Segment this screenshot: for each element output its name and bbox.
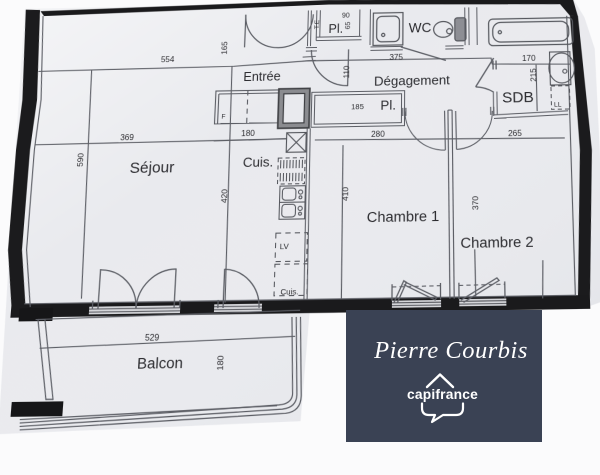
svg-text:T.E: T.E bbox=[314, 20, 321, 29]
svg-text:280: 280 bbox=[371, 130, 386, 140]
svg-text:Entrée: Entrée bbox=[243, 69, 281, 84]
svg-text:SDB: SDB bbox=[502, 90, 534, 107]
svg-text:capifrance: capifrance bbox=[407, 387, 478, 402]
svg-text:375: 375 bbox=[389, 53, 403, 62]
svg-text:529: 529 bbox=[145, 332, 160, 342]
svg-text:420: 420 bbox=[219, 188, 229, 203]
svg-text:554: 554 bbox=[161, 55, 176, 64]
svg-text:370: 370 bbox=[471, 195, 481, 210]
svg-text:Chambre 1: Chambre 1 bbox=[367, 208, 440, 225]
svg-text:F: F bbox=[221, 113, 225, 120]
svg-text:LL: LL bbox=[554, 101, 562, 108]
svg-text:215: 215 bbox=[528, 68, 538, 82]
svg-text:180: 180 bbox=[215, 355, 226, 371]
svg-text:170: 170 bbox=[522, 54, 536, 63]
svg-text:WC: WC bbox=[409, 20, 432, 35]
svg-text:Cuis.: Cuis. bbox=[242, 155, 273, 170]
svg-text:Pl.: Pl. bbox=[328, 22, 343, 36]
svg-text:369: 369 bbox=[120, 133, 134, 143]
svg-text:165: 165 bbox=[220, 41, 230, 55]
svg-text:590: 590 bbox=[75, 152, 86, 167]
svg-text:90: 90 bbox=[342, 13, 350, 20]
svg-text:Cuis.: Cuis. bbox=[280, 287, 298, 297]
svg-text:65: 65 bbox=[345, 21, 352, 29]
svg-text:265: 265 bbox=[508, 129, 523, 139]
svg-text:Balcon: Balcon bbox=[137, 355, 184, 373]
svg-text:Pl.: Pl. bbox=[380, 98, 396, 113]
svg-text:LV: LV bbox=[280, 241, 289, 251]
svg-text:Séjour: Séjour bbox=[129, 160, 175, 178]
svg-text:Dégagement: Dégagement bbox=[374, 73, 450, 89]
svg-text:410: 410 bbox=[340, 186, 350, 201]
svg-text:Chambre 2: Chambre 2 bbox=[460, 234, 533, 252]
svg-text:180: 180 bbox=[241, 129, 256, 139]
svg-text:185: 185 bbox=[351, 102, 364, 112]
svg-text:110: 110 bbox=[342, 65, 352, 79]
